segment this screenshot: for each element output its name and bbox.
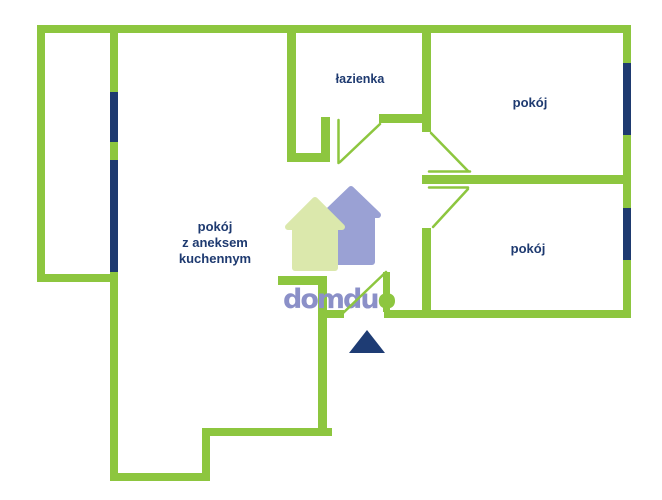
watermark-text: domduo (283, 284, 396, 315)
wall-room2-left (422, 228, 431, 318)
wall-bottom-right (384, 310, 631, 318)
label-living-room: pokój z aneksem kuchennym (150, 219, 280, 267)
room-bottom-door-swing (433, 189, 468, 227)
watermark-text-primary: domdu (283, 284, 378, 315)
label-bathroom: łazienka (310, 71, 410, 87)
balcony-window-lower (110, 160, 118, 272)
wall-left-outer (37, 25, 45, 282)
room-top-door-swing (431, 133, 468, 171)
balcony-window-upper (110, 92, 118, 142)
wall-step-horizontal (202, 428, 332, 436)
wall-top (37, 25, 631, 33)
wall-rooms-divider (422, 175, 631, 184)
label-room-top: pokój (480, 95, 580, 111)
room-bottom-window (623, 208, 631, 260)
room-top-window (623, 63, 631, 135)
watermark-logo: domduo (283, 189, 396, 315)
watermark-text-accent: o (378, 284, 396, 315)
wall-bathroom-left (287, 33, 296, 154)
wall-bottom-left (110, 473, 210, 481)
label-room-bottom: pokój (478, 241, 578, 257)
wall-balcony-bottom (37, 274, 117, 282)
entrance-triangle-icon (349, 330, 385, 353)
wall-bathroom-right (422, 33, 431, 132)
bathroom-door-swing (340, 124, 380, 162)
wall-bathroom-stub (321, 117, 330, 162)
floor-plan: domduo pokój z aneksem kuchennym łazienk… (0, 0, 662, 500)
